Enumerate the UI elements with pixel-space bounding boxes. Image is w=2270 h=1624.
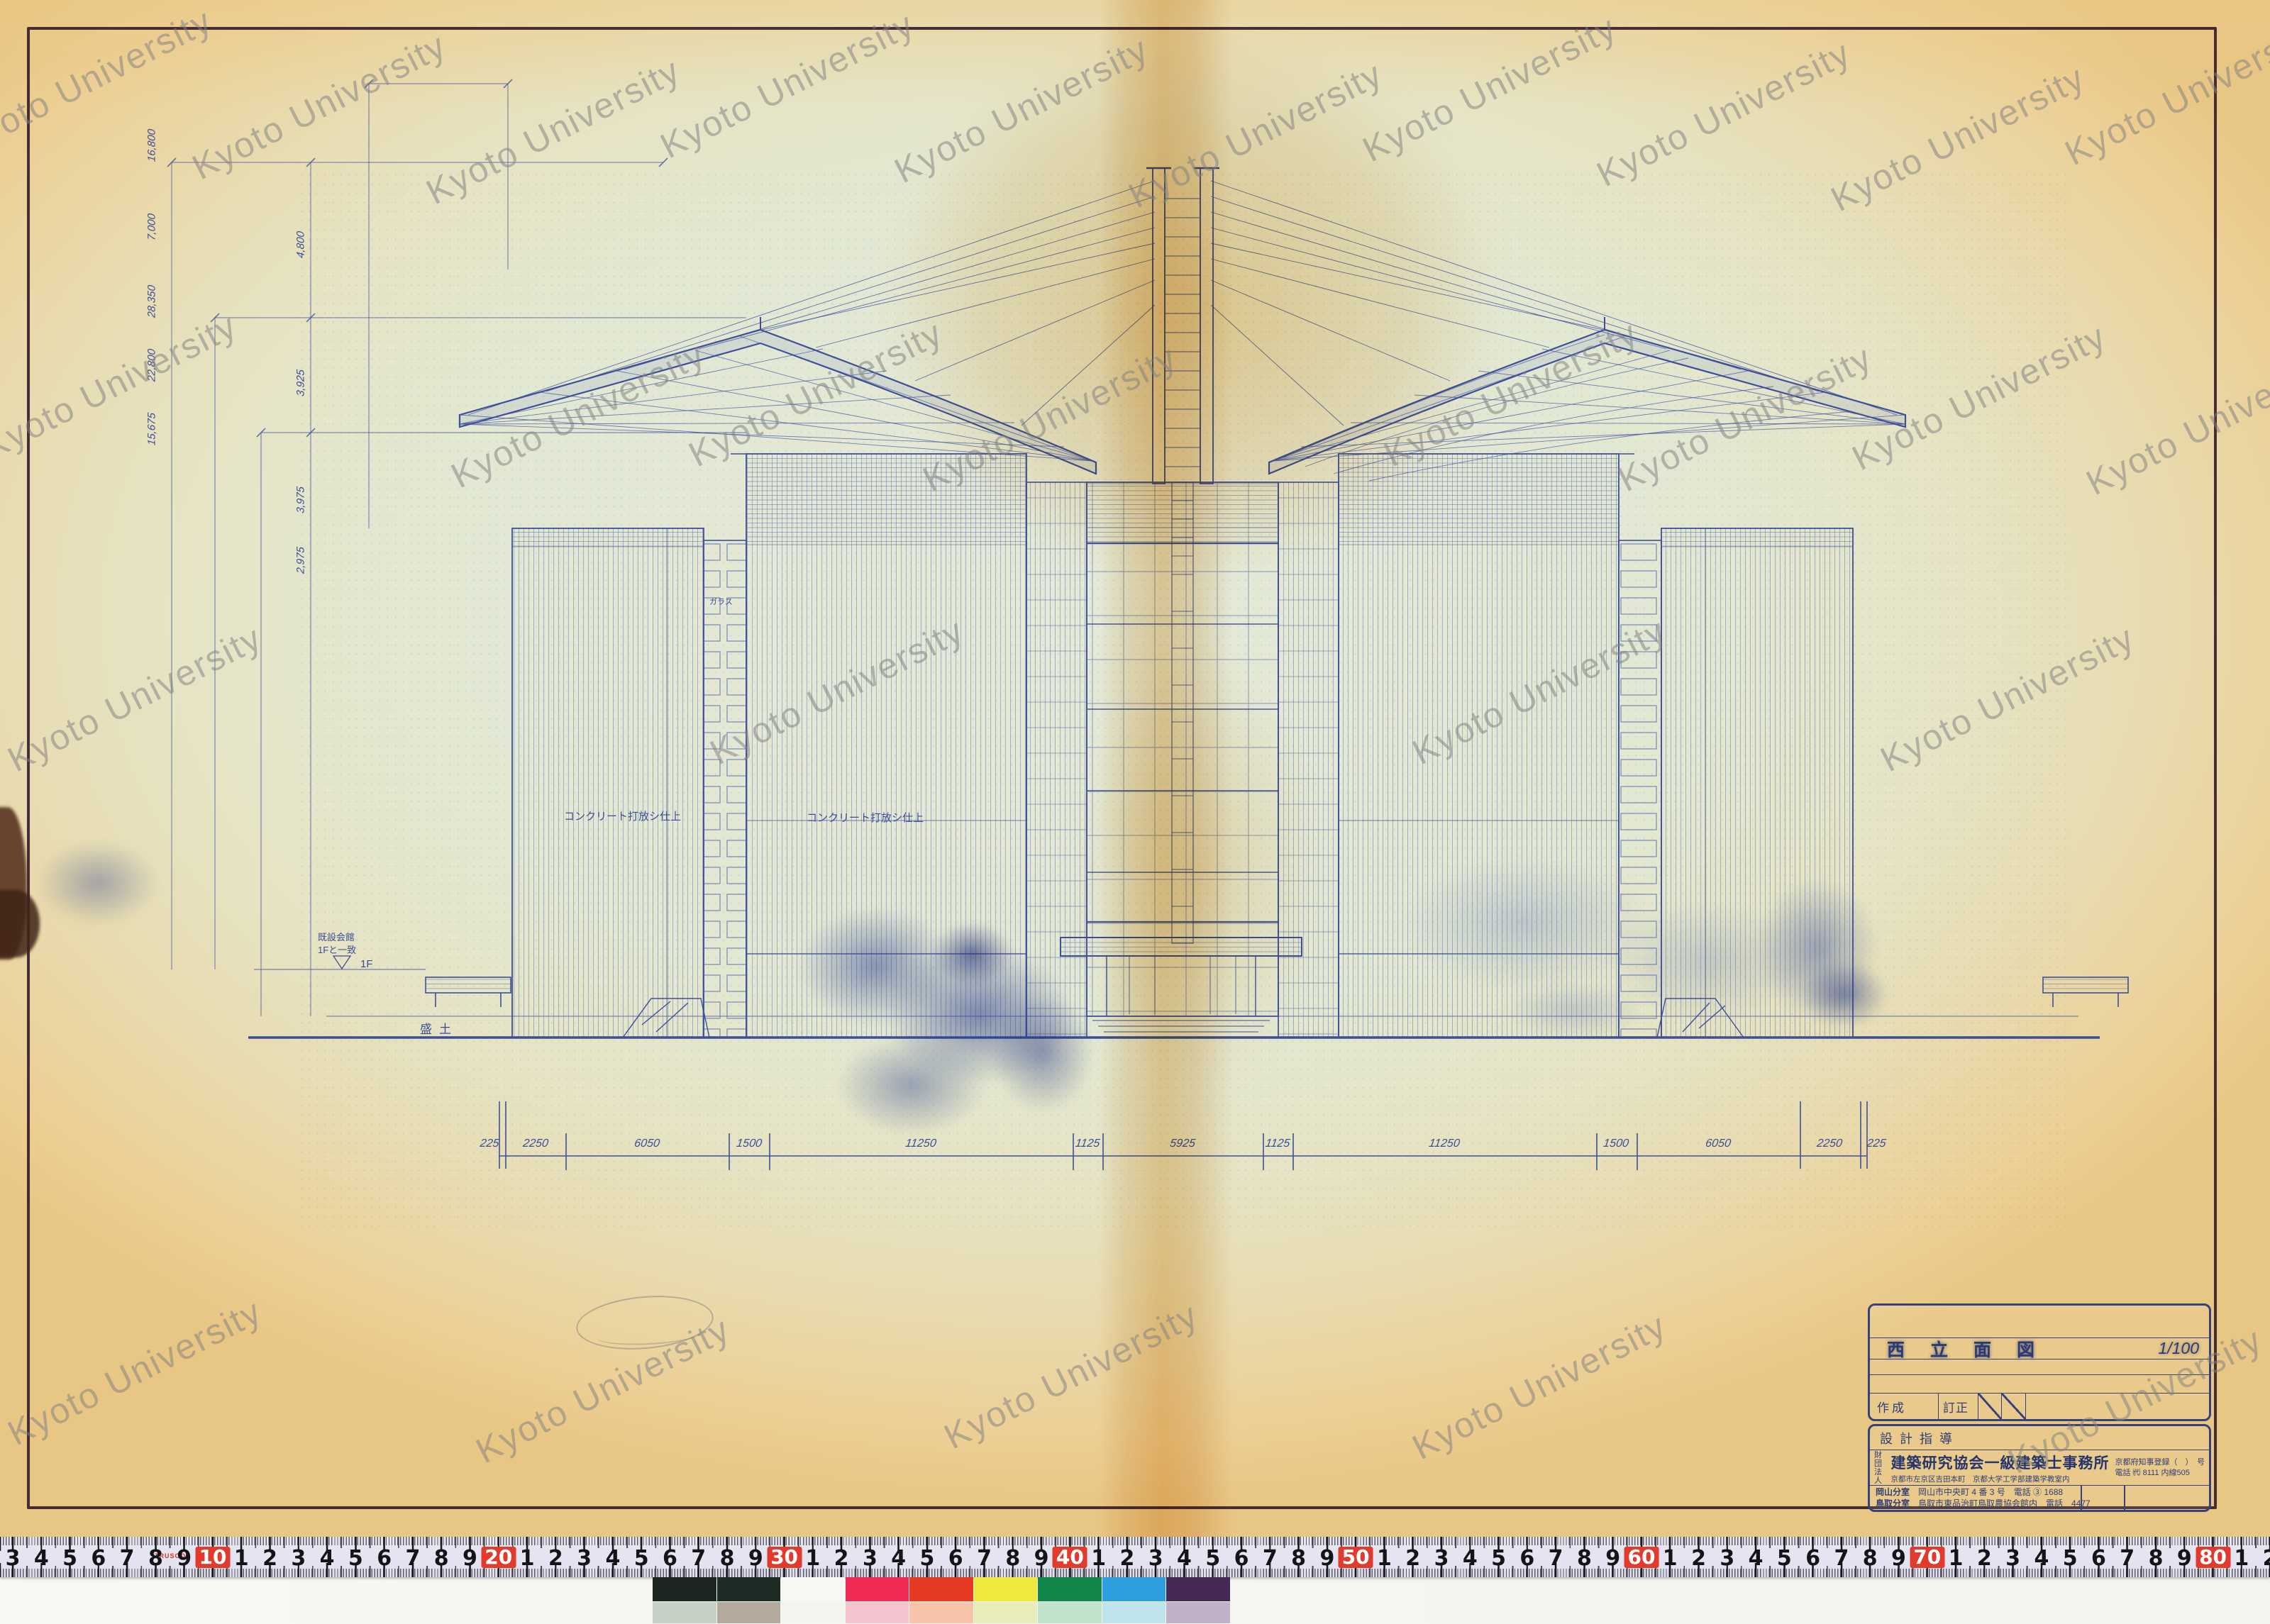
note-finish-right: コンクリート打放シ仕上: [807, 812, 924, 824]
ink-stain: [979, 979, 1107, 1128]
color-swatch: [1166, 1577, 1230, 1601]
level-marker-triangle: [333, 956, 350, 969]
color-swatch: [1038, 1577, 1102, 1601]
ruler-number: 5: [1777, 1546, 1792, 1571]
color-swatch: [1166, 1602, 1230, 1623]
dimension-value-vertical: 2,975: [295, 546, 307, 574]
note-existing-2: 1Fと一致: [318, 945, 356, 955]
ruler-number: 1: [1949, 1546, 1964, 1571]
ruler-number: 70: [1910, 1547, 1944, 1568]
color-swatch: [653, 1602, 716, 1623]
ruler-number: 1: [1663, 1546, 1678, 1571]
ruler-number: 3: [2005, 1546, 2020, 1571]
ruler-number: 4: [605, 1546, 620, 1571]
scanned-blueprint-page: 1F 既設会館 1Fと一致 コンクリート打放シ仕上 コンクリート打放シ仕上 盛土…: [0, 0, 2270, 1624]
color-calibration-bars: [653, 1577, 1230, 1623]
ruler-number: 1: [234, 1546, 249, 1571]
ruler-number: 8: [148, 1546, 163, 1571]
blueprint-sheet: 1F 既設会館 1Fと一致 コンクリート打放シ仕上 コンクリート打放シ仕上 盛土…: [0, 0, 2270, 1539]
ruler-number: 4: [2034, 1546, 2049, 1571]
dimension-tick: [1637, 1133, 1638, 1170]
created-label: 作成: [1870, 1398, 1907, 1416]
org-type: 財団法人: [1874, 1452, 1887, 1484]
ruler-number: 7: [1263, 1546, 1278, 1571]
dimension-value: 1500: [1602, 1138, 1629, 1150]
dimension-value: 2250: [521, 1138, 548, 1150]
registration-number: 京都府知事登録（ ） 号: [2115, 1457, 2205, 1468]
ruler-number: 8: [720, 1546, 735, 1571]
office-address: 京都市左京区吉田本町 京都大学工学部建築学教室内: [1891, 1474, 2110, 1484]
ruler-number: 7: [120, 1546, 135, 1571]
dimension-tick: [505, 1101, 506, 1169]
ruler-number: 30: [767, 1547, 802, 1568]
ruler-number: 50: [1339, 1547, 1373, 1568]
ruler-number: 10: [195, 1547, 230, 1568]
ruler-number: 3: [863, 1546, 877, 1571]
note-existing-1: 既設会館: [318, 932, 355, 942]
ruler-number: 5: [634, 1546, 649, 1571]
ruler-number: 4: [1177, 1546, 1192, 1571]
measuring-ruler: TRUSCO 345678910123456789201234567893012…: [0, 1537, 2270, 1577]
color-swatch: [1102, 1602, 1166, 1623]
ruler-number: 2: [1119, 1546, 1134, 1571]
ruler-number: 7: [691, 1546, 706, 1571]
ruler-number: 6: [1805, 1546, 1820, 1571]
dimension-value-vertical: 4,800: [295, 230, 307, 258]
ruler-number: 2: [834, 1546, 849, 1571]
ink-stain: [1490, 975, 1660, 1046]
dimension-value-vertical: 7,000: [146, 213, 158, 240]
ruler-number: 2: [1977, 1546, 1992, 1571]
ruler-number: 9: [177, 1546, 192, 1571]
office-name: 建築研究協会一級建築士事務所: [1891, 1452, 2110, 1473]
ruler-number: 5: [62, 1546, 77, 1571]
color-swatch: [717, 1602, 781, 1623]
color-swatch: [909, 1577, 973, 1601]
ruler-number: 8: [434, 1546, 449, 1571]
color-swatch: [781, 1577, 845, 1601]
ink-stain: [922, 915, 1021, 993]
ruler-number: 7: [1549, 1546, 1563, 1571]
office-phone: 電話 ㈹ 8111 内線505: [2115, 1468, 2205, 1479]
dimension-tick: [1866, 1101, 1868, 1169]
ruler-number: 6: [2091, 1546, 2106, 1571]
ruler-number: 7: [2120, 1546, 2135, 1571]
ruler-number: 6: [1519, 1546, 1534, 1571]
ruler-number: 6: [663, 1546, 677, 1571]
ruler-number: 7: [1834, 1546, 1849, 1571]
color-swatch: [846, 1602, 909, 1623]
dimension-value-vertical: 15,675: [146, 412, 158, 446]
dimension-value: 6050: [633, 1138, 660, 1150]
ruler-number: 9: [1891, 1546, 1906, 1571]
ruler-number: 2: [1691, 1546, 1706, 1571]
dimension-tick: [1860, 1101, 1861, 1169]
ruler-number: 5: [2063, 1546, 2078, 1571]
ruler-number: 8: [2149, 1546, 2164, 1571]
color-swatch: [717, 1577, 781, 1601]
dimension-value: 11250: [1428, 1138, 1461, 1150]
ruler-number: 1: [805, 1546, 820, 1571]
dimension-tick: [499, 1101, 500, 1169]
ruler-number: 4: [1749, 1546, 1764, 1571]
ink-stain: [21, 830, 174, 936]
dimension-tick: [1596, 1133, 1598, 1170]
ruler-number: 4: [34, 1546, 49, 1571]
ruler-number: 7: [977, 1546, 992, 1571]
dimension-value-vertical: 16,800: [146, 128, 158, 162]
dimension-value-vertical: 3,925: [295, 369, 307, 396]
dimension-tick: [1800, 1101, 1801, 1169]
ruler-number: 3: [6, 1546, 21, 1571]
ruler-number: 2: [1405, 1546, 1420, 1571]
ruler-number: 6: [377, 1546, 392, 1571]
ruler-number: 8: [1577, 1546, 1592, 1571]
level-label: 1F: [360, 958, 373, 970]
note-glass: ガラス: [709, 597, 733, 606]
ink-stain: [1791, 954, 1898, 1035]
color-swatch: [846, 1577, 909, 1601]
dimension-value: 6050: [1705, 1138, 1732, 1150]
dimension-value-vertical: 3,975: [295, 486, 307, 513]
color-swatch: [653, 1577, 716, 1601]
dimension-value: 225: [479, 1138, 499, 1150]
dimension-tick: [729, 1133, 730, 1170]
color-swatch: [974, 1577, 1038, 1601]
color-swatch: [909, 1602, 973, 1623]
ruler-number: 2: [262, 1546, 277, 1571]
branch1-label: 岡山分室: [1876, 1487, 1910, 1497]
color-bar-row-pastel: [653, 1602, 1230, 1623]
ruler-number: 20: [481, 1547, 516, 1568]
drawing-title: 西立面図: [1887, 1336, 2060, 1362]
ruler-number: 3: [577, 1546, 592, 1571]
ink-stain: [816, 1021, 1007, 1149]
ruler-number: 60: [1624, 1547, 1659, 1568]
dimension-value: 1500: [736, 1138, 763, 1150]
ruler-number: 1: [1091, 1546, 1106, 1571]
color-swatch: [974, 1602, 1038, 1623]
revised-label: 訂正: [1939, 1398, 1969, 1416]
note-fill: 盛土: [420, 1023, 458, 1036]
ruler-number: 6: [1234, 1546, 1249, 1571]
ruler-number: 8: [1863, 1546, 1878, 1571]
ruler-number: 4: [320, 1546, 335, 1571]
ruler-number: 9: [748, 1546, 763, 1571]
ruler-number: 9: [463, 1546, 477, 1571]
ruler-number: 3: [1148, 1546, 1163, 1571]
ruler-number: 4: [891, 1546, 906, 1571]
ruler-number: 9: [1034, 1546, 1049, 1571]
ruler-number: 5: [920, 1546, 935, 1571]
branch2-text: 鳥取市東品治町鳥取農協会館内 電話 4477: [1918, 1498, 2091, 1508]
ruler-number: 40: [1053, 1547, 1087, 1568]
ruler-number: 1: [520, 1546, 535, 1571]
ruler-number: 9: [1605, 1546, 1620, 1571]
ruler-number: 7: [405, 1546, 420, 1571]
color-swatch: [1102, 1577, 1166, 1601]
ruler-number: 3: [1434, 1546, 1449, 1571]
ruler-number: 6: [91, 1546, 106, 1571]
ruler-number: 4: [1463, 1546, 1478, 1571]
ruler-number: 8: [1291, 1546, 1306, 1571]
dimension-tick: [769, 1133, 770, 1170]
dimension-value-vertical: 28,350: [146, 284, 158, 318]
dimension-value: 225: [1866, 1138, 1886, 1150]
ruler-number: 2: [2263, 1546, 2270, 1571]
color-bar-row-saturated: [653, 1577, 1230, 1601]
note-finish-left: コンクリート打放シ仕上: [564, 811, 681, 823]
color-swatch: [781, 1602, 845, 1623]
ruler-number: 3: [291, 1546, 306, 1571]
ruler-number: 1: [2234, 1546, 2249, 1571]
ruler-number: 9: [2177, 1546, 2192, 1571]
ruler-number: 8: [1005, 1546, 1020, 1571]
ruler-number: 1: [1377, 1546, 1392, 1571]
ruler-number: 5: [1205, 1546, 1220, 1571]
ruler-number: 80: [2196, 1547, 2230, 1568]
ruler-number: 6: [948, 1546, 963, 1571]
ruler-number: 5: [348, 1546, 363, 1571]
ruler-number: 9: [1319, 1546, 1334, 1571]
dimension-tick: [565, 1133, 567, 1170]
color-swatch: [1038, 1602, 1102, 1623]
ruler-number: 2: [548, 1546, 563, 1571]
ruler-number: 3: [1720, 1546, 1734, 1571]
branch1-text: 岡山市中央町 4 番 3 号 電話 ③ 1688: [1918, 1487, 2063, 1497]
ruler-number: 5: [1491, 1546, 1506, 1571]
dimension-value: 2250: [1816, 1138, 1843, 1150]
branch2-label: 鳥取分室: [1876, 1498, 1910, 1508]
